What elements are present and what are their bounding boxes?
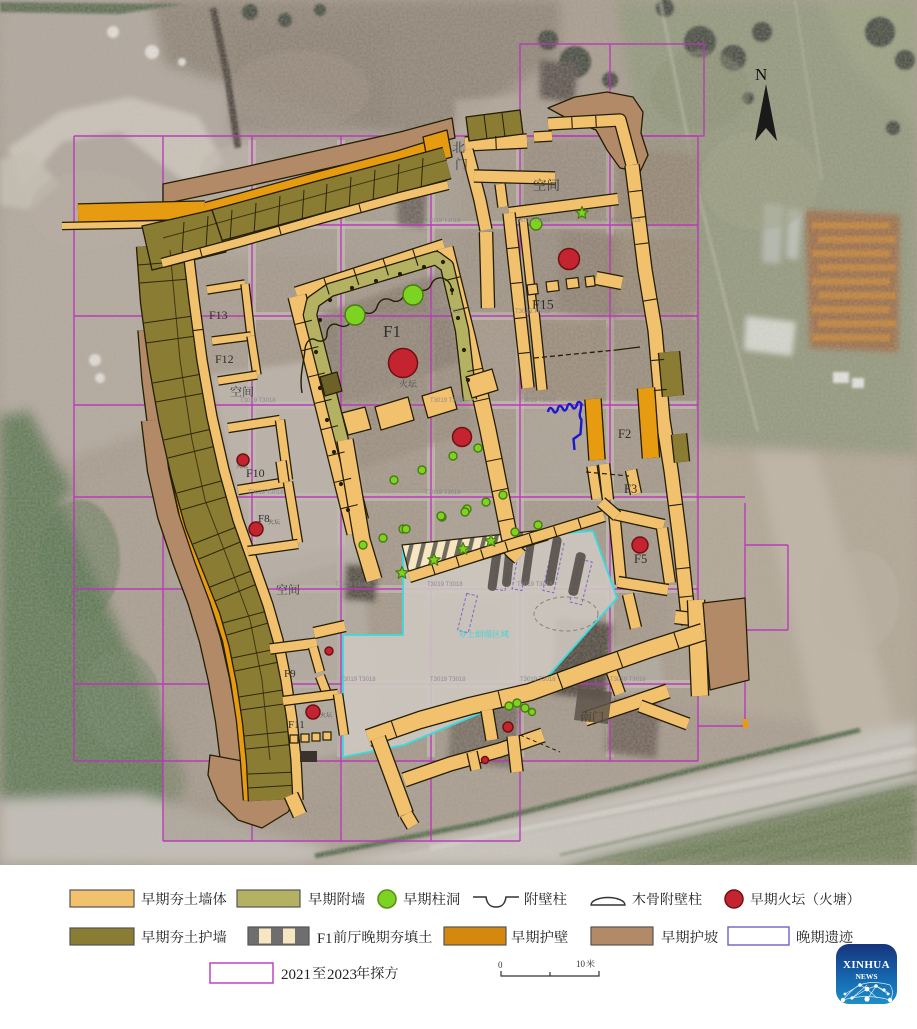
svg-text:T3019 T3018: T3019 T3018 bbox=[240, 398, 276, 404]
svg-text:T3019 T3018: T3019 T3018 bbox=[248, 490, 284, 496]
svg-text:T3019 T3018: T3019 T3018 bbox=[605, 218, 641, 224]
svg-text:F9: F9 bbox=[284, 668, 296, 680]
svg-text:NEWS: NEWS bbox=[855, 972, 877, 981]
svg-text:T3019 T3018: T3019 T3018 bbox=[515, 218, 551, 224]
svg-text:F8: F8 bbox=[258, 513, 270, 525]
svg-text:2023: 2023 bbox=[327, 967, 357, 983]
svg-text:T3019 T3018: T3019 T3018 bbox=[520, 677, 556, 683]
svg-text:T3019 T3018: T3019 T3018 bbox=[430, 677, 466, 683]
svg-text:XINHUA: XINHUA bbox=[843, 959, 890, 971]
svg-text:F13: F13 bbox=[209, 308, 228, 322]
svg-text:F12: F12 bbox=[215, 352, 234, 366]
svg-text:2021: 2021 bbox=[281, 967, 311, 983]
svg-text:T3019 T3018: T3019 T3018 bbox=[517, 582, 553, 588]
svg-text:0: 0 bbox=[498, 960, 503, 970]
svg-text:F1: F1 bbox=[383, 322, 401, 341]
svg-text:10: 10 bbox=[576, 959, 586, 969]
svg-text:T3019 T3018: T3019 T3018 bbox=[425, 218, 461, 224]
svg-text:T3019 T3018: T3019 T3018 bbox=[340, 677, 376, 683]
svg-text:T3019 T3018: T3019 T3018 bbox=[335, 582, 371, 588]
svg-text:N: N bbox=[755, 65, 767, 84]
svg-text:T3019 T3018: T3019 T3018 bbox=[427, 582, 463, 588]
svg-text:F2: F2 bbox=[618, 427, 631, 441]
svg-text:T3019 T3018: T3019 T3018 bbox=[515, 309, 551, 315]
svg-text:T3019 T3018: T3019 T3018 bbox=[430, 398, 466, 404]
svg-text:T3019 T3018: T3019 T3018 bbox=[605, 309, 641, 315]
svg-text:T3019 T3018: T3019 T3018 bbox=[425, 490, 461, 496]
svg-text:T3019 T3018: T3019 T3018 bbox=[610, 677, 646, 683]
svg-text:F1: F1 bbox=[317, 931, 332, 947]
svg-text:F10: F10 bbox=[246, 466, 265, 480]
svg-text:T3019 T3018: T3019 T3018 bbox=[425, 309, 461, 315]
svg-text:F11: F11 bbox=[288, 719, 305, 731]
svg-text:F3: F3 bbox=[624, 482, 637, 496]
svg-text:F5: F5 bbox=[634, 552, 647, 566]
svg-text:T3019 T3018: T3019 T3018 bbox=[520, 398, 556, 404]
